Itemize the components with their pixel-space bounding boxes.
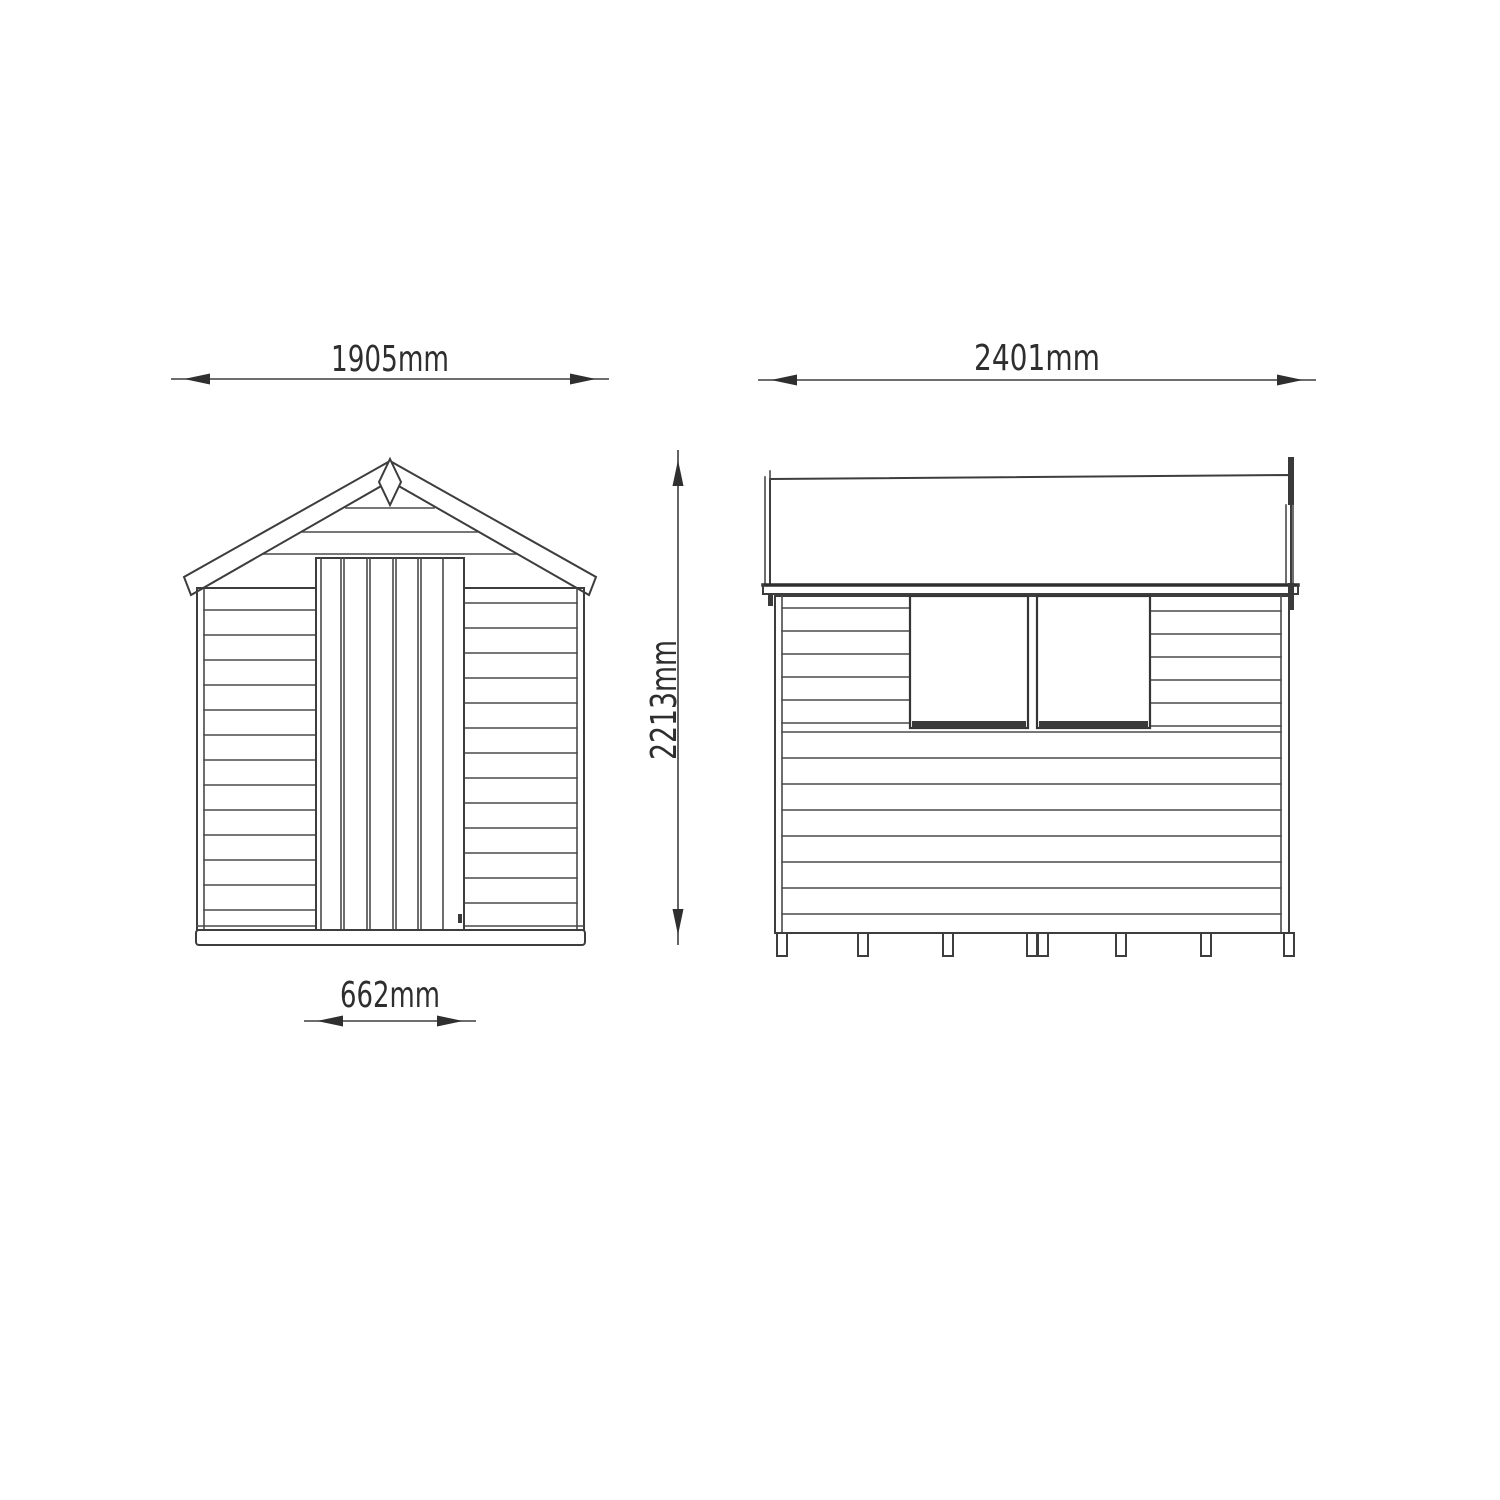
- height-dimension: 2213mm: [644, 450, 685, 945]
- bearer-foot: [777, 933, 787, 956]
- bearer-foot: [1038, 933, 1048, 956]
- shed-dimension-diagram: 1905mm 2401mm 2213mm 662mm: [0, 0, 1500, 1500]
- height-label: 2213mm: [644, 640, 685, 760]
- front-elevation: [184, 459, 596, 945]
- side-length-label: 2401mm: [974, 338, 1100, 379]
- side-roof: [763, 457, 1298, 610]
- side-wall: [775, 596, 1289, 933]
- front-walls: [197, 588, 584, 930]
- bearer-foot: [858, 933, 868, 956]
- front-left-cladding: [204, 610, 316, 910]
- front-width-dimension: 1905mm: [171, 339, 609, 385]
- dimension-arrow-right: [1277, 375, 1303, 386]
- bearer-foot: [943, 933, 953, 956]
- door-latch: [458, 914, 462, 923]
- window-left-sill: [912, 721, 1026, 728]
- diagram-svg: 1905mm 2401mm 2213mm 662mm: [0, 0, 1500, 1500]
- window-right: [1037, 596, 1150, 728]
- dimension-arrow-up: [673, 460, 684, 486]
- front-door: [316, 558, 464, 930]
- side-cladding-right: [1150, 611, 1281, 726]
- side-length-dimension: 2401mm: [758, 338, 1316, 386]
- window-left: [910, 596, 1028, 728]
- side-windows: [910, 596, 1150, 728]
- bearer-foot: [1201, 933, 1211, 956]
- door-width-label: 662mm: [340, 975, 440, 1016]
- side-cladding-left: [782, 608, 910, 723]
- left-bargeboard: [184, 461, 390, 595]
- door-width-dimension: 662mm: [304, 975, 476, 1027]
- side-elevation: [763, 457, 1298, 956]
- bearer-foot: [1027, 933, 1037, 956]
- front-base-strip: [196, 930, 585, 945]
- dimension-arrow-down: [673, 909, 684, 935]
- front-width-label: 1905mm: [331, 339, 449, 380]
- dimension-arrow-right: [437, 1016, 463, 1027]
- dimension-arrow-left: [184, 374, 210, 385]
- side-cladding-lower: [782, 732, 1281, 914]
- bearer-foot: [1284, 933, 1294, 956]
- dimension-arrow-right: [570, 374, 596, 385]
- side-bearer-feet: [777, 933, 1294, 956]
- dimension-arrow-left: [317, 1016, 343, 1027]
- dimension-arrow-left: [771, 375, 797, 386]
- bearer-foot: [1116, 933, 1126, 956]
- front-right-cladding: [464, 603, 577, 903]
- window-right-sill: [1039, 721, 1148, 728]
